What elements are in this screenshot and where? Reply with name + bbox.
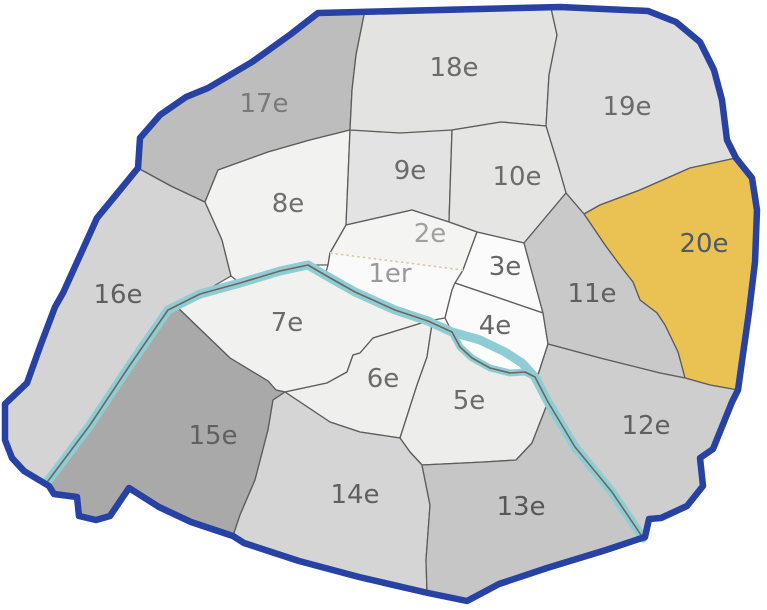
paris-arrondissements-map: 1er2e3e4e5e6e7e8e9e10e11e12e13e14e15e16e… — [0, 0, 767, 610]
region-9e[interactable] — [346, 130, 452, 225]
region-18e[interactable] — [350, 8, 557, 133]
map-canvas: 1er2e3e4e5e6e7e8e9e10e11e12e13e14e15e16e… — [0, 0, 767, 610]
